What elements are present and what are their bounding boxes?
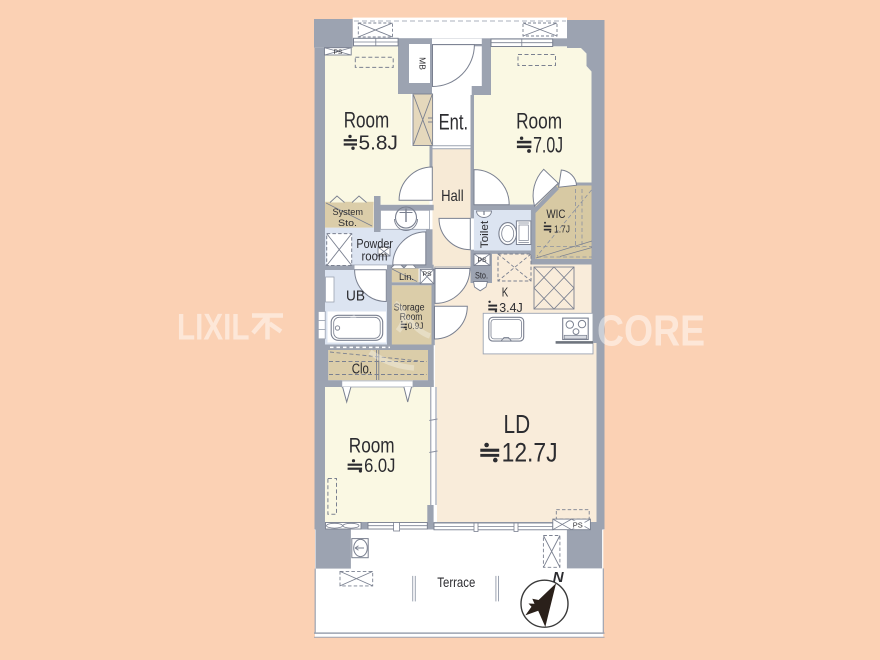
svg-text:Sto.: Sto. [475,271,488,282]
svg-text:PS: PS [573,520,583,529]
svg-text:Lin.: Lin. [399,272,414,283]
svg-text:PS: PS [477,257,487,264]
svg-text:System: System [333,207,364,218]
svg-text:N: N [553,569,565,586]
svg-text:5.8J: 5.8J [359,132,398,155]
svg-text:Sto.: Sto. [338,218,357,229]
svg-text:Ent.: Ent. [439,110,469,135]
svg-text:12.7J: 12.7J [502,438,558,468]
svg-text:K: K [502,285,509,299]
svg-text:room: room [362,249,388,263]
svg-text:UB: UB [346,289,365,305]
svg-text:LD: LD [504,409,531,439]
svg-text:Terrace: Terrace [437,574,475,590]
svg-text:PS: PS [333,49,343,56]
svg-text:7.0J: 7.0J [533,133,563,158]
svg-text:Toilet: Toilet [479,221,491,249]
svg-text:PS: PS [422,271,432,278]
svg-text:Hall: Hall [441,188,464,205]
svg-text:1.7J: 1.7J [554,224,570,236]
svg-text:Room: Room [516,109,562,134]
svg-text:Room: Room [349,434,395,458]
svg-text:6.0J: 6.0J [364,455,395,477]
svg-text:3.4J: 3.4J [499,301,522,315]
svg-text:Clo.: Clo. [352,361,372,377]
svg-text:LIXIL: LIXIL [177,307,250,348]
svg-text:MB: MB [418,57,428,70]
svg-text:WIC: WIC [546,209,565,221]
svg-text:Room: Room [344,108,390,133]
svg-text:CORE: CORE [597,307,705,356]
